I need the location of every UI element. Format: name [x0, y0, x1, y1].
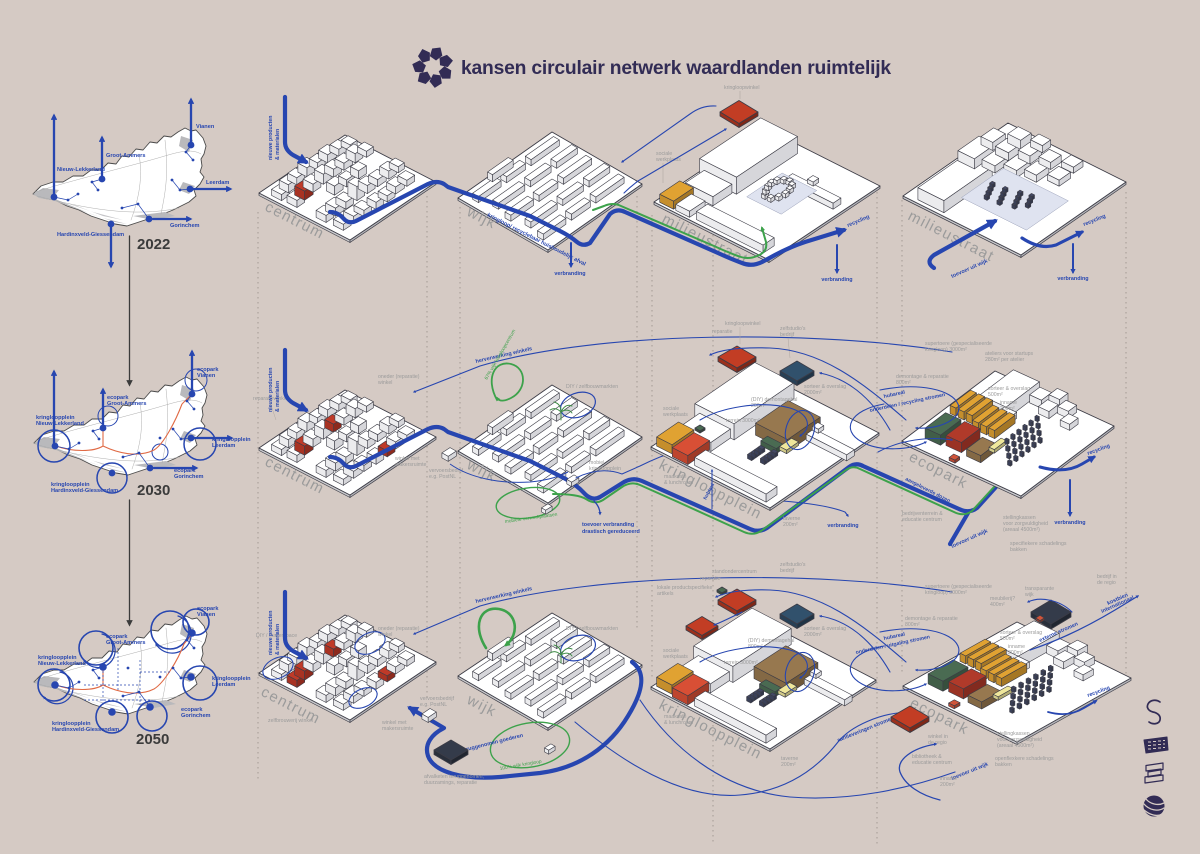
svg-text:2022: 2022	[137, 236, 170, 253]
svg-text:& lunchroom: & lunchroom	[664, 720, 693, 726]
svg-text:makersruimte: makersruimte	[382, 726, 414, 732]
svg-text:bedrijf: bedrijf	[780, 568, 795, 574]
svg-text:kringloop) 3000m²: kringloop) 3000m²	[925, 590, 967, 596]
svg-text:& lunchroom: & lunchroom	[664, 480, 693, 486]
svg-text:DIY / zelfbouwmarkten: DIY / zelfbouwmarkten	[566, 384, 618, 390]
svg-text:ecopark: ecopark	[181, 707, 203, 713]
svg-text:bedrijf: bedrijf	[780, 332, 795, 338]
svg-text:educatie centrum: educatie centrum	[912, 760, 952, 766]
svg-text:Gorinchem: Gorinchem	[174, 474, 204, 480]
svg-text:nieuwe producten: nieuwe producten	[268, 368, 274, 412]
svg-text:800m²: 800m²	[896, 380, 911, 386]
svg-text:kringloopplein: kringloopplein	[52, 721, 91, 727]
svg-text:Hardinxveld-Giessendam: Hardinxveld-Giessendam	[51, 488, 118, 494]
svg-text:reparatie: reparatie	[712, 329, 733, 335]
svg-text:e.g. PostNL: e.g. PostNL	[429, 474, 456, 480]
svg-text:Vianen: Vianen	[196, 124, 215, 130]
svg-text:kringloop) 3000m²: kringloop) 3000m²	[925, 347, 967, 353]
svg-text:Hardinxveld-Giessendam: Hardinxveld-Giessendam	[57, 232, 124, 238]
svg-text:kringloopplein: kringloopplein	[212, 437, 251, 443]
svg-text:zelfbrouwerij winkel: zelfbrouwerij winkel	[268, 718, 313, 724]
svg-text:ecopark: ecopark	[197, 367, 219, 373]
svg-text:bakken: bakken	[995, 762, 1012, 768]
svg-text:& materialen: & materialen	[275, 129, 281, 160]
svg-text:winkel: winkel	[378, 380, 392, 386]
svg-text:werkplaats: werkplaats	[663, 654, 688, 660]
svg-text:kringloopplein: kringloopplein	[212, 676, 251, 682]
svg-text:artikels: artikels	[657, 591, 674, 597]
svg-text:Nieuw-Lekkerland: Nieuw-Lekkerland	[57, 167, 105, 173]
svg-text:2050: 2050	[136, 731, 169, 748]
svg-text:reparatie: reparatie	[700, 576, 721, 582]
svg-text:kringloopwinkel: kringloopwinkel	[725, 321, 760, 327]
svg-text:DIY / zelfbouwmarkten: DIY / zelfbouwmarkten	[566, 626, 618, 632]
svg-text:200m²: 200m²	[783, 522, 798, 528]
svg-text:2000m²: 2000m²	[804, 632, 822, 638]
svg-text:duurzamings, reparatie: duurzamings, reparatie	[424, 780, 477, 786]
svg-text:200m²: 200m²	[781, 762, 796, 768]
svg-text:standondercentrum: standondercentrum	[712, 569, 757, 575]
svg-text:kringloopplein: kringloopplein	[51, 482, 90, 488]
svg-text:(areaal 4500m²): (areaal 4500m²)	[1003, 527, 1040, 533]
svg-text:Vianen: Vianen	[197, 612, 216, 618]
svg-text:400m²: 400m²	[990, 602, 1005, 608]
svg-text:verbranding: verbranding	[1057, 276, 1088, 282]
svg-text:2000m²: 2000m²	[804, 390, 822, 396]
svg-text:nieuwe producten: nieuwe producten	[268, 116, 274, 160]
svg-text:terrein 3000m²: terrein 3000m²	[724, 660, 758, 666]
svg-text:Gorinchem: Gorinchem	[170, 223, 200, 229]
svg-text:toevoer verbranding: toevoer verbranding	[582, 522, 634, 528]
svg-text:200m²: 200m²	[751, 403, 766, 409]
svg-text:500m²: 500m²	[988, 392, 1003, 398]
svg-text:& materialen: & materialen	[275, 381, 281, 412]
svg-text:Nieuw-Lekkerland: Nieuw-Lekkerland	[36, 421, 84, 427]
svg-text:drastisch gereduceerd: drastisch gereduceerd	[582, 529, 640, 535]
svg-text:e.g. PostNL: e.g. PostNL	[420, 702, 447, 708]
svg-text:800m²: 800m²	[905, 622, 920, 628]
svg-text:werkplaats: werkplaats	[663, 412, 688, 418]
svg-text:Groot-Ammers: Groot-Ammers	[107, 401, 146, 407]
svg-text:Gorinchem: Gorinchem	[181, 713, 211, 719]
svg-text:verbranding: verbranding	[1054, 520, 1085, 526]
svg-text:Leerdam: Leerdam	[212, 443, 235, 449]
svg-text:Vianen: Vianen	[197, 373, 216, 379]
svg-text:200m²: 200m²	[1008, 650, 1023, 656]
svg-text:200m²: 200m²	[1000, 406, 1015, 412]
svg-text:Nieuw-Lekkerland: Nieuw-Lekkerland	[38, 661, 86, 667]
svg-text:& materialen: & materialen	[275, 624, 281, 655]
svg-text:Leerdam: Leerdam	[212, 682, 235, 688]
svg-text:ecopark: ecopark	[107, 395, 129, 401]
svg-text:280m² per atelier: 280m² per atelier	[985, 357, 1024, 363]
svg-text:200m²: 200m²	[940, 782, 955, 788]
svg-text:terrein 3000m²: terrein 3000m²	[726, 418, 760, 424]
svg-text:Hardinxveld-Giessendam: Hardinxveld-Giessendam	[52, 727, 119, 733]
svg-text:ecopark: ecopark	[197, 606, 219, 612]
svg-text:ecopark: ecopark	[174, 468, 196, 474]
svg-text:kringloopplein: kringloopplein	[38, 655, 77, 661]
svg-text:Groot-Ammers: Groot-Ammers	[106, 640, 145, 646]
svg-text:wijk: wijk	[1025, 592, 1034, 598]
svg-text:Groot-Ammers: Groot-Ammers	[106, 153, 145, 159]
svg-text:nieuwe producten: nieuwe producten	[268, 611, 274, 655]
svg-text:Leerdam: Leerdam	[206, 180, 229, 186]
svg-text:(areaal 4500m²): (areaal 4500m²)	[997, 743, 1034, 749]
svg-text:makersruimte: makersruimte	[395, 462, 427, 468]
svg-text:winkel: winkel	[378, 632, 392, 638]
svg-text:kringloopplein: kringloopplein	[36, 415, 75, 421]
svg-text:bakken: bakken	[1010, 547, 1027, 553]
svg-text:kringloopwinkel: kringloopwinkel	[724, 85, 759, 91]
svg-text:ecopark: ecopark	[106, 634, 128, 640]
svg-text:verbranding: verbranding	[554, 271, 585, 277]
svg-text:verbranding: verbranding	[827, 523, 858, 529]
svg-text:de regio: de regio	[1097, 580, 1116, 586]
svg-text:500m²: 500m²	[1000, 636, 1015, 642]
svg-text:educatie centrum: educatie centrum	[902, 517, 942, 523]
svg-text:kansen circulair netwerk waard: kansen circulair netwerk waardlanden rui…	[461, 58, 891, 79]
svg-text:2030: 2030	[137, 482, 170, 499]
svg-text:verbranding: verbranding	[821, 277, 852, 283]
